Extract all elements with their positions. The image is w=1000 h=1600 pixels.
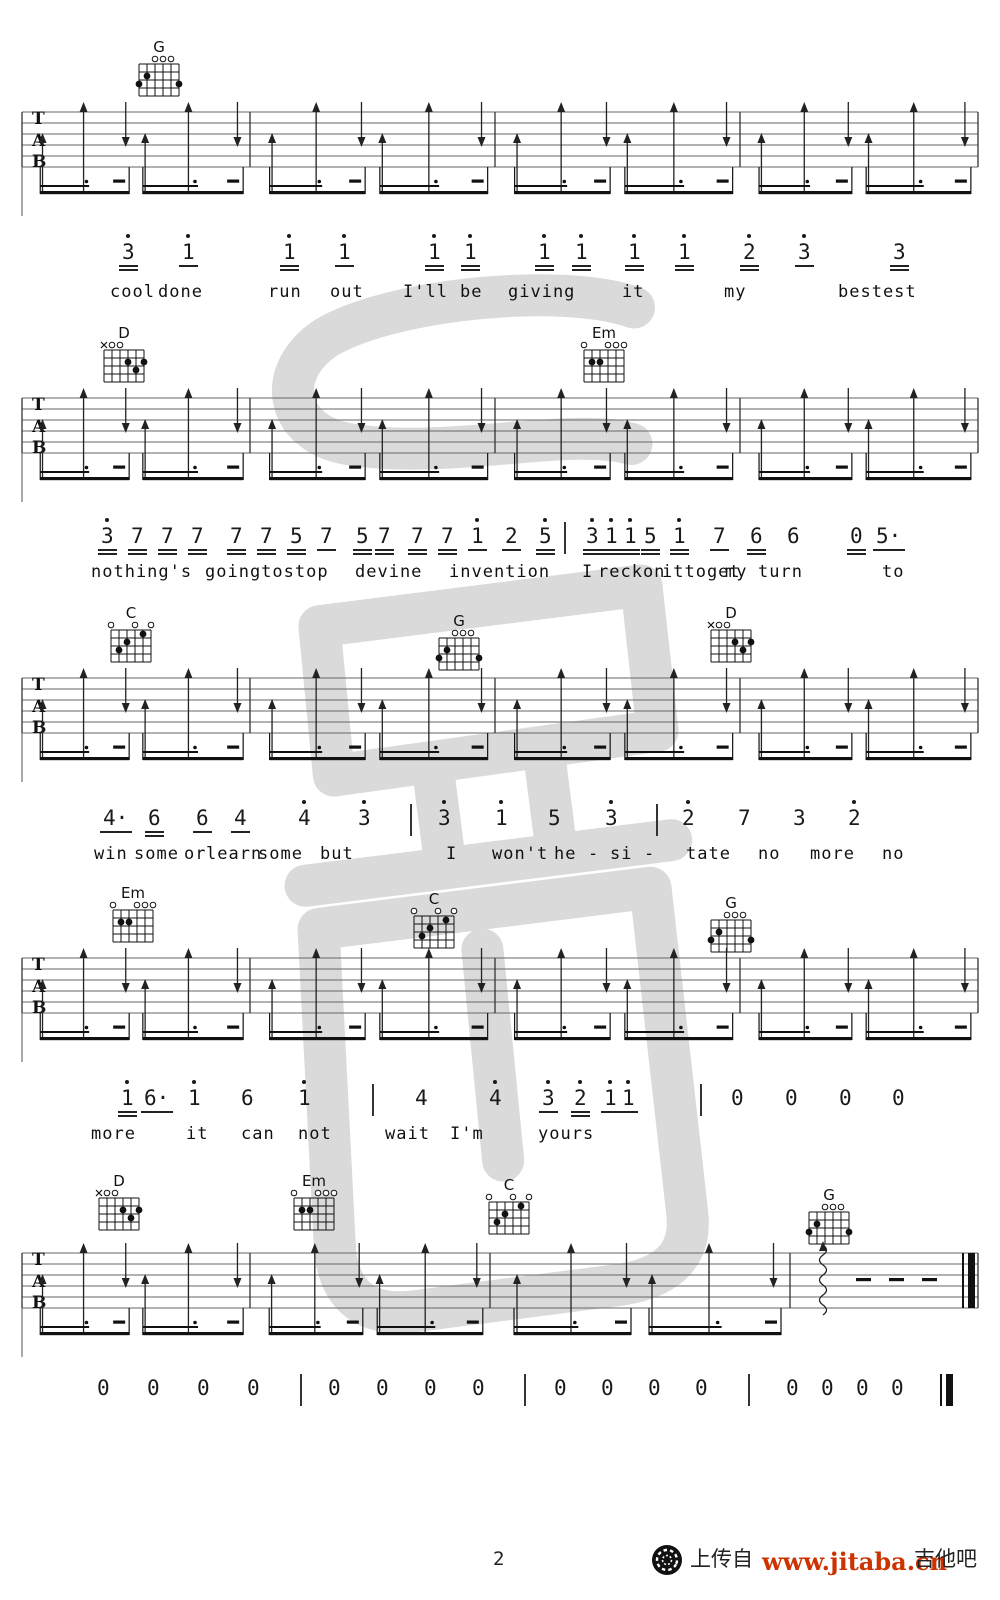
rhythm-underline xyxy=(461,269,480,271)
octave-dot xyxy=(543,518,547,522)
melody-note-value: 4 xyxy=(298,806,311,830)
melody-note-value: 0 xyxy=(147,1376,160,1400)
rhythm-underline xyxy=(231,831,250,833)
melody-note-value: 0 xyxy=(850,524,863,548)
rhythm-underline xyxy=(536,549,555,551)
melody-note: 7 xyxy=(738,808,751,829)
rhythm-underline xyxy=(625,265,644,267)
rhythm-underline xyxy=(375,553,394,555)
melody-note-value: 7 xyxy=(131,524,144,548)
rhythm-beams xyxy=(40,1013,971,1040)
melody-note: 6 xyxy=(196,808,209,829)
melody-note: 0 xyxy=(376,1378,389,1399)
melody-note: 1 xyxy=(628,242,641,263)
octave-dot xyxy=(468,234,472,238)
rhythm-underline xyxy=(98,549,117,551)
rhythm-underline xyxy=(535,269,554,271)
octave-dot xyxy=(493,1080,497,1084)
melody-note: 5 xyxy=(539,526,552,547)
melody-note: 1 xyxy=(283,242,296,263)
melody-note-value: 0 xyxy=(856,1376,869,1400)
melody-note-value: 7 xyxy=(411,524,424,548)
melody-note-value: 3 xyxy=(358,806,371,830)
melody-note: 1 xyxy=(338,242,351,263)
rhythm-underline xyxy=(193,831,212,833)
lyric-syllable: or xyxy=(184,846,206,863)
lyric-syllable: invention xyxy=(449,564,550,581)
octave-dot xyxy=(186,234,190,238)
melody-note: 0 xyxy=(472,1378,485,1399)
lyric-syllable: no xyxy=(758,846,780,863)
melody-note: 3 xyxy=(893,242,906,263)
octave-dot xyxy=(362,800,366,804)
melody-note: 0 xyxy=(821,1378,834,1399)
rhythm-underline xyxy=(353,553,372,555)
melody-note: 0 xyxy=(892,1088,905,1109)
melody-note-value: 5 xyxy=(290,524,303,548)
tab-staff: TAB xyxy=(0,88,1000,222)
melody-note: 5 xyxy=(290,526,303,547)
lyric-syllable: some xyxy=(258,846,303,863)
octave-dot xyxy=(287,234,291,238)
melody-note: 1 xyxy=(298,1088,311,1109)
svg-text:T: T xyxy=(32,395,45,415)
octave-dot xyxy=(802,234,806,238)
melody-note: 3 xyxy=(798,242,811,263)
melody-barline xyxy=(564,522,566,554)
rhythm-underline xyxy=(280,265,299,267)
melody-note-value: 2 xyxy=(848,806,861,830)
rhythm-beams xyxy=(40,453,971,480)
svg-text:C: C xyxy=(429,892,439,908)
melody-note-value: 3 xyxy=(542,1086,555,1110)
rhythm-underline xyxy=(118,1111,137,1113)
melody-note: 0 xyxy=(601,1378,614,1399)
melody-note: 1 xyxy=(495,808,508,829)
octave-dot xyxy=(546,1080,550,1084)
melody-note: 3 xyxy=(122,242,135,263)
rhythm-underline xyxy=(795,265,814,267)
rhythm-underline xyxy=(375,549,394,551)
melody-note: 7 xyxy=(161,526,174,547)
melody-note-value: 0 xyxy=(197,1376,210,1400)
melody-note: 3 xyxy=(793,808,806,829)
lyric-syllable: some xyxy=(134,846,179,863)
melody-note-value: 3 xyxy=(438,806,451,830)
melody-note-value: 7 xyxy=(441,524,454,548)
rhythm-underline xyxy=(747,553,766,555)
lyric-syllable: out xyxy=(330,284,364,301)
svg-text:B: B xyxy=(32,718,46,738)
melody-note: 4· xyxy=(103,808,128,829)
melody-barline xyxy=(748,1374,750,1406)
tab-sheet-page: GTAB3111111111233cooldonerunoutI'llbegiv… xyxy=(0,0,1000,1600)
rhythm-underline xyxy=(188,553,207,555)
strum-arrows xyxy=(39,102,969,191)
rhythm-underline xyxy=(670,549,689,551)
tab-staff: TAB xyxy=(0,374,1000,508)
svg-text:Em: Em xyxy=(302,1174,326,1190)
melody-note-value: 1 xyxy=(624,524,637,548)
rhythm-underline xyxy=(128,553,147,555)
melody-note: 0 xyxy=(891,1378,904,1399)
melody-note-value: 1 xyxy=(628,240,641,264)
melody-note-value: 3 xyxy=(122,240,135,264)
rhythm-underline xyxy=(468,549,487,551)
lyric-syllable: bestest xyxy=(838,284,917,301)
melody-note: 4 xyxy=(298,808,311,829)
melody-note-value: 4· xyxy=(103,806,128,830)
rhythm-underline xyxy=(539,1111,558,1113)
lyric-syllable: but xyxy=(320,846,354,863)
rhythm-underline xyxy=(601,1111,620,1113)
rhythm-underline xyxy=(287,549,306,551)
melody-note-value: 7 xyxy=(738,806,751,830)
rhythm-beams xyxy=(40,733,971,760)
svg-text:C: C xyxy=(504,1178,514,1194)
strum-arrows xyxy=(39,388,969,477)
melody-note: 6 xyxy=(241,1088,254,1109)
melody-note-value: 7 xyxy=(320,524,333,548)
rhythm-underline xyxy=(280,269,299,271)
melody-note-value: 0 xyxy=(97,1376,110,1400)
melody-note: 1 xyxy=(622,1088,635,1109)
final-bar-thin xyxy=(940,1374,942,1406)
melody-note-value: 1 xyxy=(604,1086,617,1110)
melody-note-value: 1 xyxy=(605,524,618,548)
melody-note: 0 xyxy=(554,1378,567,1399)
rhythm-underline xyxy=(141,1111,173,1113)
melody-note-value: 0 xyxy=(554,1376,567,1400)
rhythm-underline xyxy=(675,265,694,267)
rhythm-beams xyxy=(40,1308,781,1335)
melody-note-value: 0 xyxy=(785,1086,798,1110)
melody-note-value: 1 xyxy=(538,240,551,264)
strum-arrows xyxy=(39,1243,778,1332)
octave-dot xyxy=(632,234,636,238)
rhythm-underline xyxy=(621,549,640,551)
octave-dot xyxy=(125,1080,129,1084)
rhythm-underline xyxy=(119,265,138,267)
melody-note-value: 1 xyxy=(298,1086,311,1110)
rhythm-underline xyxy=(619,1111,638,1113)
octave-dot xyxy=(609,800,613,804)
rhythm-underline xyxy=(227,553,246,555)
melody-note: 3 xyxy=(438,808,451,829)
melody-note: 7 xyxy=(378,526,391,547)
melody-note: 7 xyxy=(230,526,243,547)
melody-note: 1 xyxy=(182,242,195,263)
melody-note: 2 xyxy=(574,1088,587,1109)
melody-note-value: 1 xyxy=(121,1086,134,1110)
octave-dot xyxy=(499,800,503,804)
melody-note-value: 0 xyxy=(821,1376,834,1400)
melody-barline xyxy=(656,804,658,836)
lyric-syllable: I xyxy=(582,564,593,581)
lyric-syllable: my xyxy=(725,564,747,581)
lyric-syllable: more xyxy=(91,1126,136,1143)
octave-dot xyxy=(475,518,479,522)
melody-note: 5 xyxy=(548,808,561,829)
rhythm-underline xyxy=(625,269,644,271)
melody-note-value: 1 xyxy=(622,1086,635,1110)
rhythm-underline xyxy=(158,549,177,551)
octave-dot xyxy=(852,800,856,804)
melody-note: 3 xyxy=(586,526,599,547)
rhythm-underline xyxy=(438,549,457,551)
melody-note-value: 2 xyxy=(743,240,756,264)
melody-note: 2 xyxy=(743,242,756,263)
lyric-syllable: win xyxy=(94,846,128,863)
melody-note-value: 7 xyxy=(161,524,174,548)
melody-note: 0 xyxy=(648,1378,661,1399)
lyric-syllable: giving xyxy=(508,284,575,301)
melody-note-value: 0 xyxy=(891,1376,904,1400)
svg-text:B: B xyxy=(32,998,46,1018)
melody-note-value: 3 xyxy=(586,524,599,548)
melody-note-value: 0 xyxy=(376,1376,389,1400)
rhythm-underline xyxy=(502,549,521,551)
melody-note-value: 0 xyxy=(892,1086,905,1110)
lyric-syllable: run xyxy=(268,284,302,301)
strum-arrows xyxy=(39,668,969,757)
melody-note-value: 1 xyxy=(464,240,477,264)
melody-note-value: 3 xyxy=(605,806,618,830)
octave-dot xyxy=(747,234,751,238)
octave-dot xyxy=(442,800,446,804)
octave-dot xyxy=(542,234,546,238)
svg-text:G: G xyxy=(725,896,737,912)
melody-note: 1 xyxy=(624,526,637,547)
lyric-syllable: I'll xyxy=(403,284,448,301)
melody-note-value: 6 xyxy=(750,524,763,548)
rhythm-underline xyxy=(179,265,198,267)
rhythm-underline xyxy=(128,549,147,551)
melody-note: 3 xyxy=(101,526,114,547)
rhythm-underline xyxy=(572,269,591,271)
lyric-syllable: tate xyxy=(686,846,731,863)
melody-barline xyxy=(700,1084,702,1116)
ending-marks xyxy=(819,1241,975,1315)
melody-note: 0 xyxy=(785,1088,798,1109)
melody-note-value: 6 xyxy=(241,1086,254,1110)
melody-note-value: 1 xyxy=(678,240,691,264)
rhythm-underline xyxy=(119,269,138,271)
rhythm-underline xyxy=(602,549,621,551)
melody-note: 0 xyxy=(97,1378,110,1399)
melody-note-value: 0 xyxy=(328,1376,341,1400)
svg-text:Em: Em xyxy=(121,886,145,902)
melody-note: 2 xyxy=(682,808,695,829)
octave-dot xyxy=(105,518,109,522)
melody-note-value: 6 xyxy=(787,524,800,548)
lyric-syllable: reckon xyxy=(598,564,665,581)
melody-note-value: 7 xyxy=(230,524,243,548)
melody-note-value: 2 xyxy=(682,806,695,830)
melody-note-value: 0 xyxy=(648,1376,661,1400)
melody-note-value: 1 xyxy=(471,524,484,548)
melody-note: 3 xyxy=(605,808,618,829)
melody-note: 0 xyxy=(731,1088,744,1109)
svg-text:D: D xyxy=(113,1174,125,1190)
melody-note-value: 3 xyxy=(101,524,114,548)
octave-dot xyxy=(126,234,130,238)
melody-note-value: 3 xyxy=(793,806,806,830)
octave-dot xyxy=(686,800,690,804)
rhythm-underline xyxy=(740,269,759,271)
melody-note: 0 xyxy=(850,526,863,547)
melody-note-value: 1 xyxy=(575,240,588,264)
rhythm-underline xyxy=(641,553,660,555)
melody-note: 0 xyxy=(856,1378,869,1399)
melody-note-value: 0 xyxy=(695,1376,708,1400)
lyric-syllable: won't xyxy=(492,846,548,863)
melody-note: 1 xyxy=(464,242,477,263)
octave-dot xyxy=(302,1080,306,1084)
lyric-syllable: be xyxy=(460,284,482,301)
octave-dot xyxy=(608,1080,612,1084)
melody-note-value: 3 xyxy=(893,240,906,264)
melody-note-value: 5 xyxy=(548,806,561,830)
octave-dot xyxy=(578,1080,582,1084)
lyric-syllable: devine xyxy=(355,564,422,581)
octave-dot xyxy=(677,518,681,522)
melody-barline xyxy=(372,1084,374,1116)
rhythm-underline xyxy=(621,553,640,555)
rhythm-underline xyxy=(98,553,117,555)
melody-note-value: 1 xyxy=(182,240,195,264)
lyric-syllable: done xyxy=(158,284,203,301)
lyric-syllable: it xyxy=(622,284,644,301)
svg-text:B: B xyxy=(32,1293,46,1313)
tab-staff: TAB xyxy=(0,654,1000,788)
rhythm-underline xyxy=(641,549,660,551)
rhythm-beams xyxy=(40,167,971,194)
rhythm-underline xyxy=(408,553,427,555)
melody-note-value: 5 xyxy=(644,524,657,548)
rhythm-underline xyxy=(287,553,306,555)
melody-barline xyxy=(300,1374,302,1406)
melody-note: 1 xyxy=(605,526,618,547)
melody-note-value: 2 xyxy=(505,524,518,548)
melody-note: 4 xyxy=(415,1088,428,1109)
melody-note-value: 1 xyxy=(495,806,508,830)
melody-note: 0 xyxy=(147,1378,160,1399)
lyric-syllable: - xyxy=(644,846,655,863)
melody-note: 7 xyxy=(191,526,204,547)
octave-dot xyxy=(626,1080,630,1084)
lyric-syllable: more xyxy=(810,846,855,863)
melody-note: 6 xyxy=(750,526,763,547)
octave-dot xyxy=(579,234,583,238)
melody-note-value: 0 xyxy=(247,1376,260,1400)
rhythm-underline xyxy=(408,549,427,551)
rhythm-underline xyxy=(747,549,766,551)
svg-text:C: C xyxy=(126,606,136,622)
melody-note-value: 1 xyxy=(188,1086,201,1110)
final-bar-thick xyxy=(946,1374,953,1406)
melody-note: 7 xyxy=(441,526,454,547)
svg-text:B: B xyxy=(32,152,46,172)
melody-note-value: 7 xyxy=(191,524,204,548)
melody-note-value: 7 xyxy=(378,524,391,548)
melody-note-value: 2 xyxy=(574,1086,587,1110)
melody-note: 2 xyxy=(848,808,861,829)
lyric-syllable: my xyxy=(724,284,746,301)
melody-note-value: 0 xyxy=(601,1376,614,1400)
lyric-syllable: si xyxy=(610,846,632,863)
melody-note: 7 xyxy=(131,526,144,547)
lyric-syllable: not xyxy=(298,1126,332,1143)
melody-note: 3 xyxy=(542,1088,555,1109)
sheet-content: GTAB3111111111233cooldonerunoutI'llbegiv… xyxy=(0,0,1000,1600)
melody-note-value: 6· xyxy=(144,1086,169,1110)
rhythm-underline xyxy=(571,1111,590,1113)
rhythm-underline xyxy=(335,265,354,267)
melody-note: 5 xyxy=(644,526,657,547)
rhythm-underline xyxy=(100,831,132,833)
melody-note: 1 xyxy=(678,242,691,263)
rhythm-underline xyxy=(145,835,164,837)
lyric-syllable: nothing's xyxy=(91,564,192,581)
lyric-syllable: learn xyxy=(206,846,262,863)
melody-note: 0 xyxy=(328,1378,341,1399)
rhythm-underline xyxy=(257,553,276,555)
rhythm-underline xyxy=(425,269,444,271)
melody-note-value: 1 xyxy=(283,240,296,264)
melody-note: 0 xyxy=(247,1378,260,1399)
lyric-syllable: cool xyxy=(110,284,155,301)
octave-dot xyxy=(590,518,594,522)
rhythm-underline xyxy=(675,269,694,271)
rhythm-underline xyxy=(873,549,905,551)
melody-note-value: 0 xyxy=(786,1376,799,1400)
melody-note-value: 0 xyxy=(839,1086,852,1110)
melody-final-barline xyxy=(940,1374,952,1406)
melody-note: 0 xyxy=(424,1378,437,1399)
svg-text:T: T xyxy=(32,955,45,975)
melody-note: 1 xyxy=(575,242,588,263)
melody-note-value: 4 xyxy=(234,806,247,830)
lyric-syllable: I'm xyxy=(450,1126,484,1143)
lyric-syllable: can xyxy=(241,1126,275,1143)
rhythm-underline xyxy=(227,549,246,551)
melody-note: 1 xyxy=(673,526,686,547)
rhythm-underline xyxy=(317,549,336,551)
octave-dot xyxy=(609,518,613,522)
svg-text:D: D xyxy=(725,606,737,622)
svg-text:B: B xyxy=(32,438,46,458)
rhythm-underline xyxy=(461,265,480,267)
rhythm-underline xyxy=(572,265,591,267)
melody-note: 1 xyxy=(188,1088,201,1109)
lyric-syllable: to xyxy=(882,564,904,581)
lyric-syllable: he xyxy=(554,846,576,863)
melody-note: 7 xyxy=(260,526,273,547)
rhythm-underline xyxy=(602,553,621,555)
melody-note: 2 xyxy=(505,526,518,547)
melody-barline xyxy=(410,804,412,836)
melody-note: 7 xyxy=(411,526,424,547)
rhythm-underline xyxy=(571,1115,590,1117)
svg-text:T: T xyxy=(32,109,45,129)
melody-note-value: 1 xyxy=(673,524,686,548)
rhythm-underline xyxy=(710,549,729,551)
svg-text:T: T xyxy=(32,1250,45,1270)
svg-text:G: G xyxy=(453,614,465,630)
rhythm-underline xyxy=(740,265,759,267)
melody-note: 0 xyxy=(786,1378,799,1399)
